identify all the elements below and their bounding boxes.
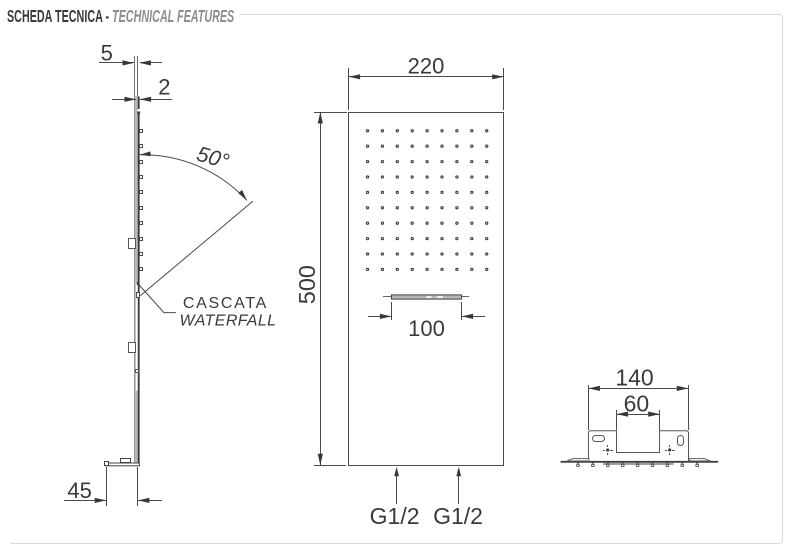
svg-text:2: 2	[158, 74, 170, 99]
svg-text:G1/2: G1/2	[370, 503, 420, 529]
svg-text:45: 45	[67, 478, 91, 503]
svg-text:500: 500	[294, 265, 320, 304]
svg-text:60: 60	[624, 391, 650, 417]
svg-text:100: 100	[408, 316, 445, 341]
svg-text:CASCATA: CASCATA	[183, 295, 268, 312]
svg-text:G1/2: G1/2	[433, 503, 483, 529]
svg-text:5: 5	[101, 40, 113, 65]
svg-text:220: 220	[408, 54, 445, 79]
svg-text:WATERFALL: WATERFALL	[180, 312, 277, 329]
svg-text:50°: 50°	[194, 142, 232, 174]
svg-text:140: 140	[615, 365, 653, 391]
